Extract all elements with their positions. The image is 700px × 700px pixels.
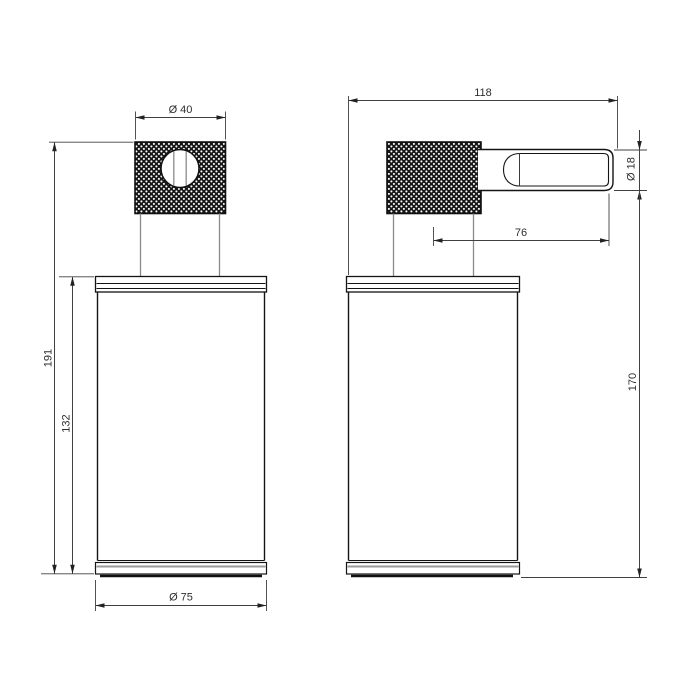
dim-label-spout-diameter: Ø 18 <box>625 157 637 181</box>
dim-cap-diameter: Ø 40 <box>136 104 226 140</box>
technical-drawing: Ø 40 191 132 Ø 75 <box>0 0 700 700</box>
front-lid <box>96 277 267 293</box>
dim-spout-height: 170 <box>521 191 647 578</box>
arrowhead <box>637 569 642 578</box>
arrowhead <box>217 115 226 120</box>
dim-spout-diameter: Ø 18 <box>614 130 647 200</box>
arrowhead <box>52 565 57 574</box>
dim-label-spout-projection: 76 <box>515 227 527 239</box>
drawing-canvas: Ø 40 191 132 Ø 75 <box>0 0 700 700</box>
dim-label-overall-width: 118 <box>474 87 492 99</box>
arrowhead <box>52 142 57 151</box>
front-view: Ø 40 191 132 Ø 75 <box>41 104 267 611</box>
dim-label-cap-diameter: Ø 40 <box>169 104 193 116</box>
arrowhead <box>136 115 145 120</box>
arrowhead <box>70 277 75 286</box>
dim-overall-height: 191 <box>41 142 134 574</box>
arrowhead <box>434 238 443 243</box>
arrowhead <box>70 565 75 574</box>
arrowhead <box>609 98 618 103</box>
dim-label-overall-height: 191 <box>42 349 54 367</box>
dim-body-height: 132 <box>59 277 94 574</box>
arrowhead <box>96 603 105 608</box>
side-base-band <box>347 563 520 575</box>
side-lid <box>347 277 520 293</box>
side-knurled-cap <box>387 142 481 214</box>
arrowhead <box>258 603 267 608</box>
front-pump-hole <box>161 150 199 188</box>
side-view: 118 76 Ø 18 170 <box>347 87 648 578</box>
arrowhead <box>349 98 358 103</box>
dim-label-spout-height: 170 <box>627 373 639 391</box>
arrowhead <box>600 238 609 243</box>
front-base-band <box>96 563 267 575</box>
arrowhead <box>637 141 642 150</box>
dim-body-diameter: Ø 75 <box>96 580 267 611</box>
dim-label-body-diameter: Ø 75 <box>169 592 193 604</box>
dim-label-body-height: 132 <box>60 414 72 432</box>
